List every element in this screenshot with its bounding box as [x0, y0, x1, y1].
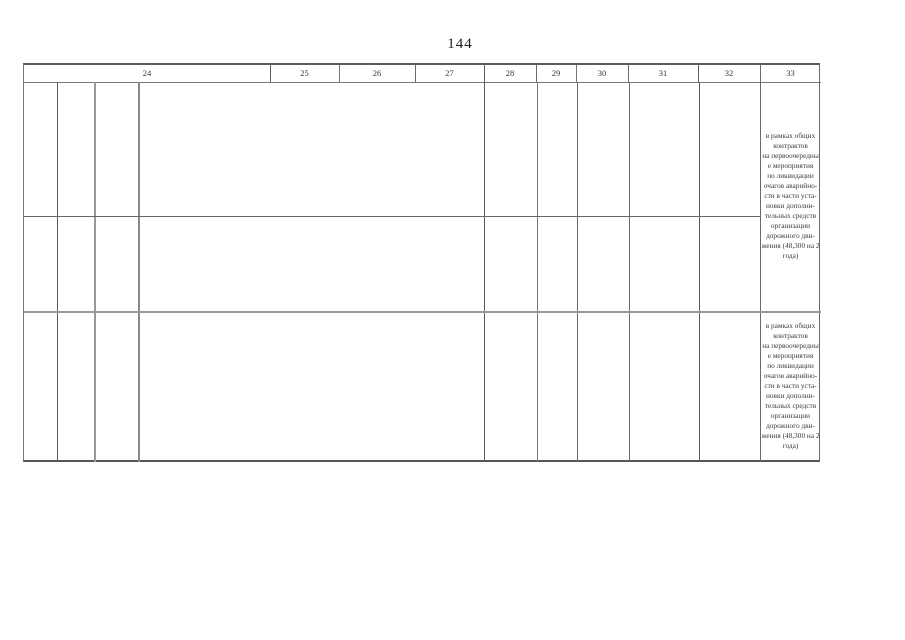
col33-note-row2: в рамках общих контрактов на первоочеред…: [760, 321, 821, 451]
body-column-line: [484, 82, 485, 462]
data-table: 24 25 26 27 28 29 30 31 32 33 в рамках о…: [23, 63, 820, 462]
body-column-line: [57, 82, 58, 462]
column-header-24: 24: [24, 68, 270, 79]
column-header-28: 28: [484, 68, 536, 79]
column-header-26: 26: [339, 68, 415, 79]
row-divider-1: [24, 216, 761, 217]
column-header-30: 30: [576, 68, 628, 79]
column-header-31: 31: [628, 68, 698, 79]
body-column-line: [537, 82, 538, 462]
column-header-27: 27: [415, 68, 484, 79]
page-number: 144: [420, 36, 500, 53]
column-header-32: 32: [698, 68, 760, 79]
body-column-line: [94, 82, 96, 462]
body-column-line: [138, 82, 140, 462]
body-column-line: [699, 82, 700, 462]
header-divider: [24, 82, 821, 83]
row-divider-2: [24, 311, 821, 313]
col33-note-row1: в рамках общих контрактов на первоочеред…: [760, 131, 821, 261]
column-header-25: 25: [270, 68, 339, 79]
column-header-29: 29: [536, 68, 576, 79]
document-page: 144 24 25 26 27 28 29 30 31 32 33: [0, 0, 905, 640]
body-column-line: [577, 82, 578, 462]
column-header-33: 33: [760, 68, 821, 79]
body-column-line: [629, 82, 630, 462]
